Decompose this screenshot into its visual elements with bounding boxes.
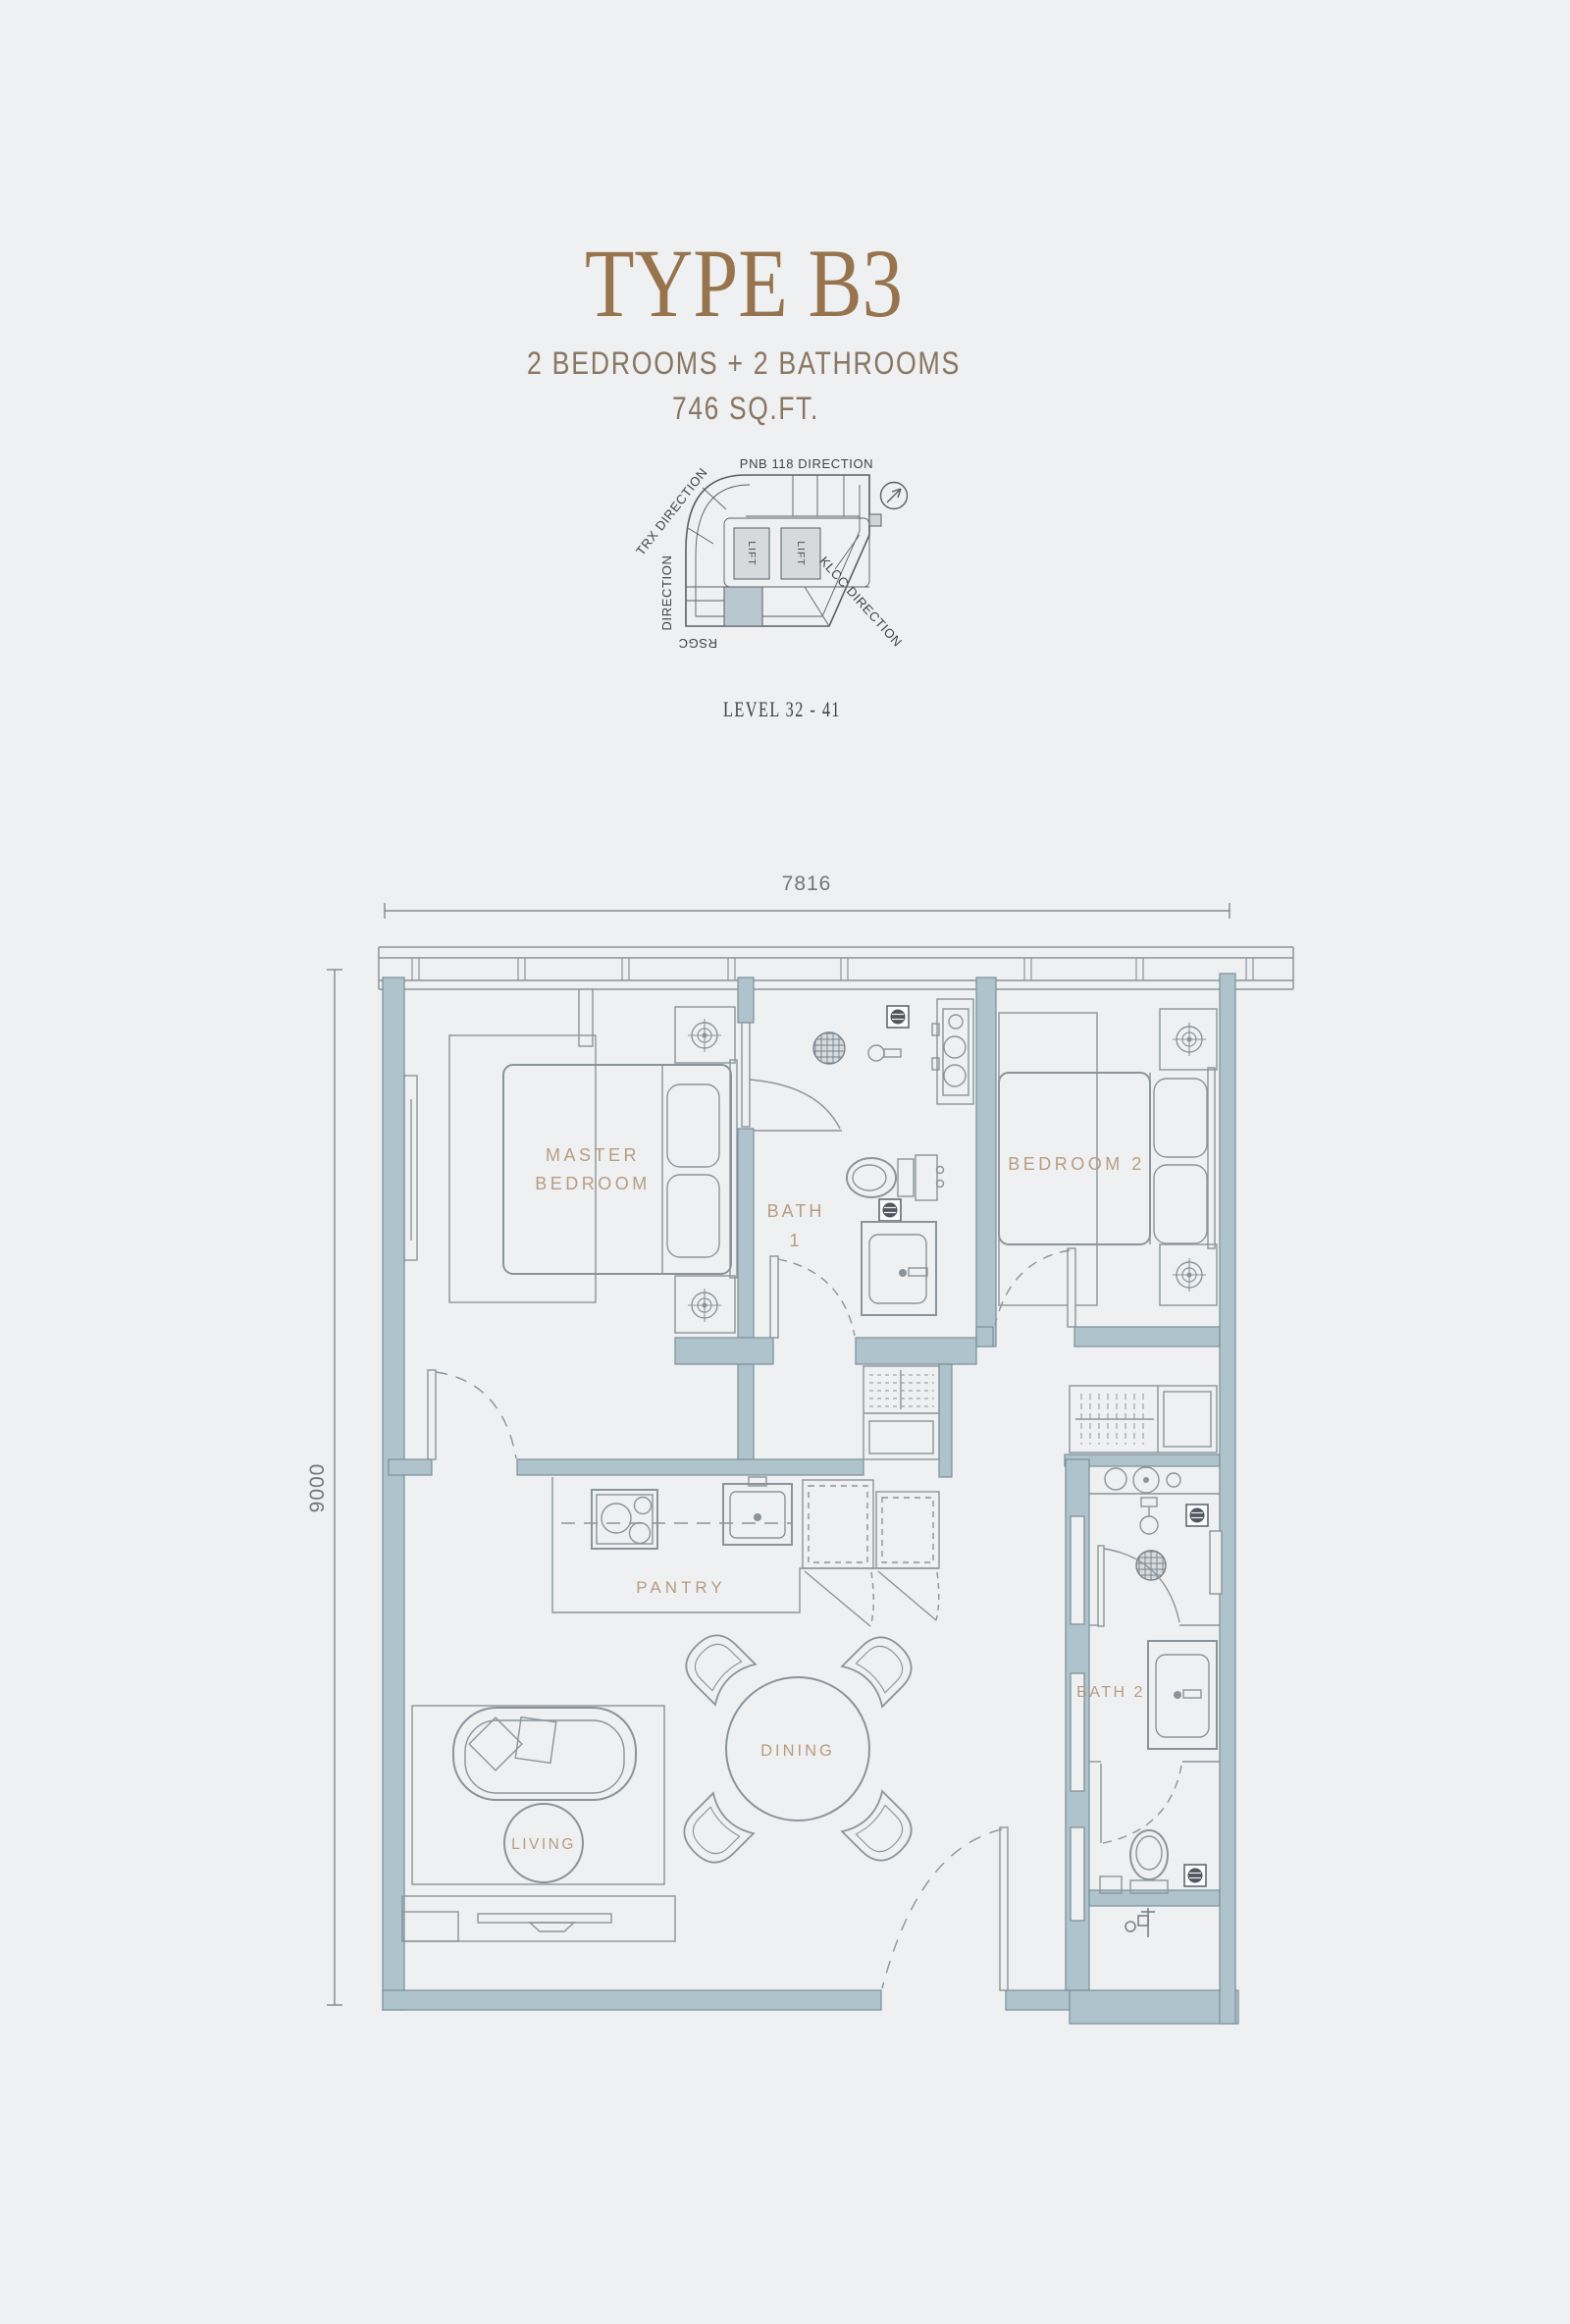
room-label-pantry: PANTRY (636, 1578, 725, 1597)
keyplan-trx-label: TRX DIRECTION (633, 465, 710, 558)
shower-drain-icon (1136, 1551, 1166, 1580)
corridor-wardrobe (1070, 1386, 1217, 1452)
north-arrow-icon (881, 483, 908, 509)
room-label-living: LIVING (511, 1836, 576, 1853)
lamp-icon (688, 1289, 721, 1322)
door-swing (882, 1829, 1002, 1988)
unit-highlight (724, 587, 762, 626)
level-label: LEVEL 32 - 41 (723, 697, 841, 721)
shower-mixer (1141, 1498, 1157, 1506)
vanity (862, 1222, 936, 1315)
page-subtitle: 2 BEDROOMS + 2 BATHROOMS (527, 345, 961, 381)
door-leaf (428, 1370, 436, 1459)
facade-windows (379, 947, 1293, 989)
bedroom-2: BEDROOM 2 (995, 1009, 1217, 1327)
page-area: 746 SQ.FT. (672, 391, 819, 426)
shower-mixer (868, 1045, 884, 1061)
exhaust-fan-icon (1184, 1865, 1206, 1886)
chair (676, 1625, 756, 1705)
room-label-master2: BEDROOM (535, 1174, 651, 1193)
door-swing (436, 1372, 516, 1458)
keyplan-pnb-label: PNB 118 DIRECTION (740, 456, 873, 471)
rug (449, 1035, 596, 1302)
pipe-fitting (1125, 1908, 1155, 1937)
lamp-icon (1173, 1258, 1206, 1292)
bath-1: BATH 1 (742, 999, 973, 1338)
lamp-icon (688, 1019, 721, 1052)
lift-2-label: LIFT (795, 541, 807, 566)
pillow (1154, 1165, 1207, 1243)
hall-wardrobe (863, 1366, 939, 1459)
chair (674, 1793, 754, 1873)
lift-1: LIFT (734, 528, 769, 579)
sofa (453, 1708, 636, 1800)
toilet (1130, 1830, 1168, 1893)
door-leaf (770, 1256, 778, 1338)
appliance (876, 1492, 939, 1620)
room-label-bath2: BATH 2 (1076, 1684, 1145, 1701)
door-leaf (1000, 1827, 1008, 1990)
bath-2: BATH 2 (1076, 1467, 1220, 1937)
keyplan-klcc-label: KLCC DIRECTION (816, 554, 905, 650)
door-swing (778, 1259, 855, 1336)
rug (412, 1706, 664, 1884)
exhaust-fan-icon (1186, 1505, 1208, 1526)
floorplan-canvas: TYPE B3 2 BEDROOMS + 2 BATHROOMS 746 SQ.… (0, 0, 1570, 2324)
dimension-width-label: 7816 (782, 872, 832, 895)
keyplan-rsgc-label: RSGC (678, 636, 717, 651)
room-label-bath1-num: 1 (789, 1231, 802, 1250)
room-label-master: MASTER (546, 1145, 640, 1165)
master-bedroom: MASTER BEDROOM (404, 1007, 737, 1459)
dimension-height-label: 9000 (306, 1463, 329, 1513)
floorplan-page: TYPE B3 2 BEDROOMS + 2 BATHROOMS 746 SQ.… (0, 0, 1570, 2324)
door-leaf (742, 1023, 750, 1127)
toilet (847, 1155, 944, 1200)
door-leaf (1098, 1546, 1104, 1626)
room-label-bath1: BATH (767, 1201, 825, 1221)
living-area: LIVING (402, 1706, 675, 1941)
kitchen-sink (723, 1477, 792, 1545)
chair (842, 1627, 921, 1707)
dimension-top: 7816 (385, 872, 1230, 919)
exhaust-fan-icon (879, 1199, 901, 1221)
lift-1-label: LIFT (746, 541, 758, 566)
door-leaf (1068, 1248, 1075, 1327)
tv-console (402, 1896, 675, 1941)
key-plan: PNB 118 DIRECTION LIFT LIFT (633, 456, 907, 721)
appliance (803, 1480, 873, 1626)
headboard (1208, 1068, 1215, 1248)
vanity (1148, 1641, 1217, 1749)
room-label-dining: DINING (760, 1742, 835, 1760)
header: TYPE B3 2 BEDROOMS + 2 BATHROOMS 746 SQ.… (527, 229, 961, 426)
chair (842, 1791, 921, 1871)
exhaust-fan-icon (887, 1006, 909, 1028)
page-title: TYPE B3 (585, 229, 903, 338)
pillow (1154, 1079, 1207, 1157)
keyplan-direction-label: DIRECTION (659, 555, 674, 631)
pillow (667, 1084, 719, 1167)
door-swing (750, 1080, 840, 1129)
entrance-door (882, 1827, 1008, 1990)
dimension-left: 9000 (306, 970, 342, 2005)
lamp-icon (1173, 1023, 1206, 1056)
room-label-bedroom2: BEDROOM 2 (1008, 1154, 1145, 1174)
bed (503, 1065, 731, 1274)
pantry: PANTRY (552, 1477, 939, 1626)
lift-2: LIFT (781, 528, 820, 579)
door-swing (995, 1250, 1070, 1325)
shower-drain-icon (813, 1032, 845, 1064)
dining-area: DINING (674, 1625, 920, 1872)
pillow (667, 1175, 719, 1257)
cooktop (592, 1490, 657, 1549)
